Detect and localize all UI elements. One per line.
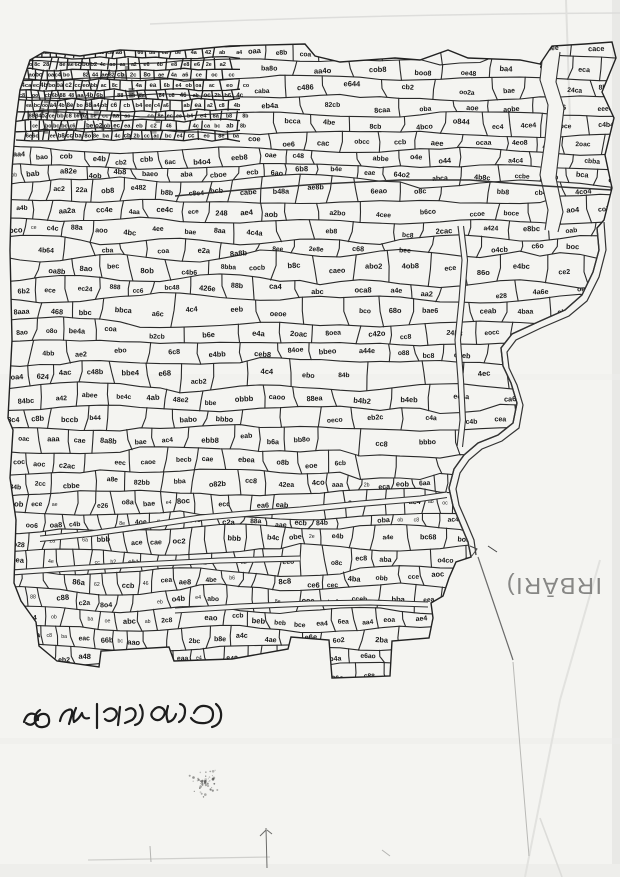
svg-text:ee: ee bbox=[176, 114, 182, 120]
svg-text:eca: eca bbox=[378, 484, 390, 492]
svg-text:cb2: cb2 bbox=[115, 159, 127, 167]
svg-text:248: 248 bbox=[215, 208, 227, 217]
svg-text:8ao: 8ao bbox=[79, 264, 93, 273]
svg-text:be: be bbox=[90, 114, 96, 120]
svg-text:4bb: 4bb bbox=[42, 350, 54, 357]
svg-text:ob: ob bbox=[101, 103, 109, 109]
svg-text:4ba: 4ba bbox=[348, 574, 362, 584]
svg-text:oca8: oca8 bbox=[354, 285, 371, 294]
svg-text:eec: eec bbox=[114, 459, 126, 467]
svg-text:bo: bo bbox=[35, 73, 43, 79]
svg-text:bc: bc bbox=[53, 124, 59, 130]
svg-text:ec8: ec8 bbox=[355, 554, 367, 562]
svg-text:b8: b8 bbox=[58, 133, 66, 139]
svg-text:4b8: 4b8 bbox=[113, 167, 126, 176]
svg-text:bae: bae bbox=[134, 439, 147, 447]
svg-text:b4: b4 bbox=[187, 114, 193, 120]
svg-text:6b: 6b bbox=[164, 83, 170, 89]
svg-text:bba: bba bbox=[174, 478, 187, 486]
svg-text:c2a: c2a bbox=[79, 600, 91, 608]
svg-text:c4: c4 bbox=[55, 73, 62, 79]
svg-text:426e: 426e bbox=[199, 283, 216, 293]
svg-text:46: 46 bbox=[143, 581, 149, 587]
svg-text:2bc: 2bc bbox=[189, 638, 201, 645]
svg-text:2oac: 2oac bbox=[290, 329, 308, 339]
svg-text:ec: ec bbox=[33, 83, 39, 89]
svg-text:8b: 8b bbox=[242, 114, 248, 120]
svg-text:ce: ce bbox=[49, 114, 55, 120]
svg-text:ece: ece bbox=[31, 501, 43, 508]
svg-text:a4c4: a4c4 bbox=[508, 157, 523, 164]
svg-text:cb: cb bbox=[45, 93, 52, 99]
svg-text:eoe: eoe bbox=[305, 461, 318, 471]
svg-text:8oea: 8oea bbox=[325, 329, 341, 337]
svg-text:e26: e26 bbox=[97, 503, 108, 510]
svg-text:8o: 8o bbox=[84, 133, 91, 139]
svg-text:a4: a4 bbox=[236, 50, 242, 56]
svg-text:abee: abee bbox=[82, 392, 98, 400]
svg-text:ec24: ec24 bbox=[77, 285, 93, 293]
svg-text:8c: 8c bbox=[34, 62, 40, 68]
svg-text:8c8: 8c8 bbox=[278, 576, 291, 586]
svg-text:e8: e8 bbox=[171, 62, 177, 68]
svg-text:28: 28 bbox=[43, 62, 49, 68]
svg-text:aa4: aa4 bbox=[13, 150, 25, 158]
svg-text:c48b: c48b bbox=[87, 367, 104, 376]
svg-text:c486: c486 bbox=[297, 82, 314, 92]
svg-text:2e: 2e bbox=[206, 62, 212, 68]
svg-text:c4c: c4c bbox=[47, 225, 59, 233]
svg-text:ea: ea bbox=[26, 103, 32, 109]
svg-text:ae: ae bbox=[68, 62, 74, 68]
svg-text:eao: eao bbox=[204, 613, 218, 623]
svg-text:4ob: 4ob bbox=[89, 171, 103, 180]
svg-text:ece: ece bbox=[188, 208, 200, 216]
svg-text:abca: abca bbox=[432, 175, 448, 183]
svg-text:88a: 88a bbox=[250, 518, 262, 525]
svg-text:e4a: e4a bbox=[252, 329, 266, 339]
svg-text:82cb: 82cb bbox=[325, 102, 341, 109]
svg-text:acb2: acb2 bbox=[191, 379, 207, 386]
svg-text:aa: aa bbox=[120, 62, 126, 68]
svg-text:ce2: ce2 bbox=[558, 269, 570, 277]
svg-text:8e: 8e bbox=[157, 114, 163, 120]
svg-text:eae: eae bbox=[364, 170, 375, 177]
svg-text:b4e: b4e bbox=[330, 166, 342, 173]
svg-text:e4b: e4b bbox=[331, 533, 343, 541]
svg-text:e68: e68 bbox=[158, 368, 171, 378]
svg-text:a4b: a4b bbox=[16, 205, 28, 212]
svg-text:ab: ab bbox=[145, 619, 151, 625]
svg-text:ab: ab bbox=[184, 103, 191, 109]
svg-text:4aa: 4aa bbox=[129, 209, 141, 216]
svg-text:o8a: o8a bbox=[122, 499, 134, 506]
svg-text:b8b: b8b bbox=[160, 188, 174, 197]
svg-text:4bco: 4bco bbox=[416, 122, 434, 131]
svg-text:ec4: ec4 bbox=[492, 124, 504, 131]
svg-text:e4: e4 bbox=[176, 83, 182, 89]
svg-text:2ba: 2ba bbox=[375, 635, 389, 645]
svg-text:88a: 88a bbox=[71, 224, 83, 232]
svg-text:bo: bo bbox=[82, 61, 90, 68]
svg-text:84b: 84b bbox=[316, 520, 328, 528]
svg-text:o844: o844 bbox=[453, 116, 471, 126]
svg-text:abo2: abo2 bbox=[365, 261, 382, 270]
svg-text:cea: cea bbox=[160, 577, 172, 585]
svg-text:ab: ab bbox=[219, 50, 226, 56]
svg-text:bc8: bc8 bbox=[422, 353, 434, 360]
svg-text:bbbo: bbbo bbox=[419, 439, 436, 446]
svg-text:eb: eb bbox=[157, 599, 163, 605]
svg-text:4b: 4b bbox=[86, 92, 93, 99]
svg-text:44: 44 bbox=[92, 73, 99, 79]
svg-text:8e: 8e bbox=[218, 133, 224, 139]
svg-text:ba4: ba4 bbox=[499, 64, 513, 74]
svg-text:bae: bae bbox=[184, 229, 196, 237]
svg-text:a424: a424 bbox=[483, 225, 498, 232]
svg-text:4e: 4e bbox=[48, 559, 54, 565]
svg-text:boc: boc bbox=[566, 242, 579, 251]
svg-text:o8b: o8b bbox=[276, 458, 290, 467]
svg-text:aaa: aaa bbox=[47, 434, 60, 443]
svg-text:c4: c4 bbox=[154, 103, 160, 109]
svg-text:oo2a: oo2a bbox=[459, 89, 475, 97]
svg-text:68o: 68o bbox=[389, 306, 402, 315]
svg-text:4a: 4a bbox=[171, 73, 178, 79]
svg-text:cc8: cc8 bbox=[400, 334, 412, 342]
svg-text:22a: 22a bbox=[76, 186, 88, 194]
svg-text:oac: oac bbox=[18, 435, 30, 443]
svg-text:c8: c8 bbox=[414, 518, 420, 524]
svg-text:oae: oae bbox=[264, 152, 276, 160]
svg-text:4co: 4co bbox=[312, 478, 326, 488]
svg-text:b6a: b6a bbox=[267, 438, 279, 446]
svg-text:oe: oe bbox=[105, 619, 111, 625]
svg-text:6b: 6b bbox=[52, 93, 58, 99]
svg-text:cocb: cocb bbox=[249, 265, 265, 273]
svg-text:ea: ea bbox=[124, 124, 131, 130]
svg-text:a2: a2 bbox=[207, 103, 213, 109]
svg-text:cace: cace bbox=[588, 44, 604, 53]
svg-text:ec: ec bbox=[113, 123, 120, 130]
svg-text:coa: coa bbox=[300, 51, 312, 58]
svg-text:6ao: 6ao bbox=[270, 168, 284, 178]
svg-text:ece: ece bbox=[444, 264, 457, 273]
svg-text:6a: 6a bbox=[82, 537, 88, 543]
svg-text:bbe4: bbe4 bbox=[121, 368, 139, 377]
svg-text:88b: 88b bbox=[231, 282, 244, 291]
svg-text:eo: eo bbox=[203, 133, 210, 139]
svg-text:eab: eab bbox=[240, 433, 253, 441]
svg-text:c68: c68 bbox=[352, 244, 364, 254]
svg-text:6aa: 6aa bbox=[419, 480, 431, 488]
svg-text:babo: babo bbox=[179, 414, 197, 424]
svg-text:ac4: ac4 bbox=[162, 437, 174, 445]
svg-text:bbb: bbb bbox=[227, 533, 242, 543]
svg-text:ee: ee bbox=[145, 103, 152, 109]
svg-text:ba: ba bbox=[102, 133, 109, 139]
svg-text:IRBĀRI): IRBĀRI) bbox=[505, 573, 602, 599]
svg-text:bbbo: bbbo bbox=[215, 414, 234, 424]
svg-text:8caa: 8caa bbox=[374, 105, 392, 115]
svg-text:ba: ba bbox=[75, 132, 83, 139]
svg-text:8o4: 8o4 bbox=[100, 602, 112, 609]
svg-text:468: 468 bbox=[51, 307, 64, 317]
svg-text:bo: bo bbox=[45, 124, 52, 130]
svg-text:bce: bce bbox=[294, 622, 306, 630]
svg-text:o44: o44 bbox=[438, 156, 452, 166]
svg-text:ecb: ecb bbox=[294, 518, 308, 528]
svg-text:c8b: c8b bbox=[31, 414, 45, 424]
svg-text:o4b: o4b bbox=[171, 594, 185, 604]
svg-text:co: co bbox=[243, 83, 250, 89]
svg-text:6ac: 6ac bbox=[164, 159, 176, 167]
svg-text:ea4: ea4 bbox=[316, 620, 328, 627]
svg-text:cb: cb bbox=[117, 72, 124, 79]
svg-text:48e2: 48e2 bbox=[173, 397, 189, 405]
svg-text:a4: a4 bbox=[93, 103, 100, 109]
svg-text:cce: cce bbox=[408, 574, 419, 581]
svg-text:cc: cc bbox=[228, 73, 234, 79]
svg-text:obbb: obbb bbox=[234, 394, 253, 404]
svg-text:bab: bab bbox=[26, 169, 40, 179]
svg-text:42ea: 42ea bbox=[279, 482, 295, 489]
svg-text:o8o: o8o bbox=[46, 328, 58, 335]
svg-text:o82b: o82b bbox=[209, 479, 227, 489]
svg-text:cea: cea bbox=[494, 415, 506, 423]
svg-text:88ea: 88ea bbox=[306, 393, 323, 403]
svg-text:aoe: aoe bbox=[466, 104, 479, 113]
svg-text:a2bo: a2bo bbox=[329, 210, 345, 218]
svg-text:e4: e4 bbox=[177, 133, 183, 139]
svg-text:coe: coe bbox=[248, 134, 260, 143]
svg-text:oa: oa bbox=[195, 83, 201, 89]
svg-text:8a8b: 8a8b bbox=[230, 248, 248, 258]
svg-text:2b: 2b bbox=[364, 483, 370, 489]
svg-text:ao4: ao4 bbox=[566, 205, 580, 215]
svg-text:aa2a: aa2a bbox=[58, 206, 76, 216]
svg-text:e4bb: e4bb bbox=[208, 349, 226, 359]
svg-text:8o: 8o bbox=[143, 72, 150, 79]
svg-text:ab: ab bbox=[193, 93, 200, 99]
svg-text:4be: 4be bbox=[323, 118, 336, 127]
svg-text:eb8: eb8 bbox=[325, 228, 337, 235]
svg-text:cae: cae bbox=[73, 436, 85, 445]
svg-text:ob: ob bbox=[104, 124, 111, 130]
svg-text:4ce4: 4ce4 bbox=[521, 122, 537, 130]
svg-text:84bc: 84bc bbox=[18, 396, 35, 406]
svg-text:ocaa: ocaa bbox=[476, 140, 492, 147]
svg-text:oa8: oa8 bbox=[49, 520, 62, 530]
svg-text:bc68: bc68 bbox=[420, 532, 436, 541]
svg-text:4a: 4a bbox=[136, 83, 143, 89]
svg-text:c48: c48 bbox=[292, 153, 304, 160]
svg-text:8oc: 8oc bbox=[177, 496, 191, 506]
svg-text:ea: ea bbox=[195, 102, 202, 109]
svg-text:abbe: abbe bbox=[372, 155, 389, 163]
svg-text:eo: eo bbox=[226, 83, 233, 89]
svg-text:ac: ac bbox=[124, 114, 130, 120]
svg-text:c8: c8 bbox=[219, 103, 225, 109]
svg-text:ccbe: ccbe bbox=[515, 173, 530, 181]
svg-text:6c8: 6c8 bbox=[168, 348, 180, 357]
svg-text:cob8: cob8 bbox=[369, 65, 387, 75]
svg-text:e4: e4 bbox=[200, 114, 207, 120]
svg-text:oa4: oa4 bbox=[10, 372, 24, 382]
svg-text:bcb: bcb bbox=[210, 186, 224, 196]
svg-text:aao: aao bbox=[127, 637, 141, 647]
svg-text:4ab: 4ab bbox=[146, 393, 160, 403]
svg-text:a8e: a8e bbox=[106, 476, 118, 484]
svg-text:cc: cc bbox=[102, 114, 108, 120]
svg-text:2e8e: 2e8e bbox=[309, 246, 324, 254]
svg-text:4a6e: 4a6e bbox=[533, 288, 549, 296]
svg-text:b4: b4 bbox=[135, 103, 143, 109]
svg-text:ace: ace bbox=[131, 539, 143, 547]
svg-text:ce: ce bbox=[196, 73, 202, 79]
svg-text:ba: ba bbox=[88, 616, 94, 622]
svg-text:cc4e: cc4e bbox=[96, 205, 113, 214]
svg-text:ece: ece bbox=[44, 287, 56, 295]
svg-text:cc8: cc8 bbox=[375, 439, 388, 449]
svg-text:ac2: ac2 bbox=[53, 186, 65, 193]
svg-text:eeb8: eeb8 bbox=[231, 152, 248, 162]
svg-text:abc: abc bbox=[123, 616, 136, 625]
svg-text:ccb: ccb bbox=[232, 612, 244, 619]
svg-text:abc: abc bbox=[311, 287, 323, 296]
svg-text:6cb: 6cb bbox=[334, 460, 346, 468]
svg-text:6b: 6b bbox=[157, 62, 163, 68]
svg-text:bb: bb bbox=[57, 114, 64, 120]
svg-text:e2a: e2a bbox=[197, 246, 211, 256]
svg-text:oe48: oe48 bbox=[460, 70, 476, 78]
svg-text:bco: bco bbox=[359, 308, 371, 316]
svg-text:ob8: ob8 bbox=[101, 186, 114, 195]
svg-text:eoa: eoa bbox=[383, 617, 395, 624]
svg-text:c2: c2 bbox=[65, 82, 72, 89]
svg-text:bo: bo bbox=[48, 83, 56, 89]
svg-text:2c8: 2c8 bbox=[161, 617, 173, 625]
svg-text:aaa: aaa bbox=[332, 482, 344, 489]
svg-text:8e: 8e bbox=[59, 62, 65, 68]
svg-text:aoo: aoo bbox=[95, 226, 109, 235]
svg-text:e8bc: e8bc bbox=[523, 224, 540, 233]
svg-text:oeoe: oeoe bbox=[270, 309, 287, 318]
svg-text:ce: ce bbox=[31, 225, 37, 231]
svg-text:b2: b2 bbox=[41, 113, 49, 120]
svg-text:bccb: bccb bbox=[61, 415, 79, 424]
svg-text:8b: 8b bbox=[240, 124, 246, 130]
svg-text:aee: aee bbox=[431, 138, 444, 148]
svg-text:ce6: ce6 bbox=[307, 580, 320, 589]
svg-text:be: be bbox=[86, 124, 94, 130]
svg-text:4b: 4b bbox=[58, 103, 65, 109]
svg-text:4c4: 4c4 bbox=[260, 367, 274, 376]
svg-text:4c: 4c bbox=[100, 62, 106, 68]
svg-text:b8: b8 bbox=[226, 114, 232, 120]
svg-text:4ee: 4ee bbox=[152, 226, 164, 233]
svg-text:aoc: aoc bbox=[33, 461, 45, 468]
svg-text:a48: a48 bbox=[78, 652, 91, 661]
svg-text:oba: oba bbox=[377, 516, 390, 525]
svg-text:bee: bee bbox=[399, 247, 411, 255]
svg-text:ca: ca bbox=[204, 124, 211, 130]
svg-text:e6ao: e6ao bbox=[360, 653, 375, 660]
svg-text:e6: e6 bbox=[143, 62, 149, 68]
svg-text:oba: oba bbox=[419, 106, 432, 114]
svg-text:86o: 86o bbox=[477, 268, 490, 277]
svg-text:c8: c8 bbox=[47, 633, 53, 639]
svg-text:aoc: aoc bbox=[431, 569, 444, 579]
svg-text:2c: 2c bbox=[130, 73, 137, 79]
svg-text:bae: bae bbox=[143, 500, 156, 508]
svg-text:4c: 4c bbox=[236, 92, 243, 99]
svg-text:a4c: a4c bbox=[236, 632, 248, 640]
svg-text:bc: bc bbox=[61, 124, 68, 130]
svg-text:ba: ba bbox=[233, 133, 240, 139]
svg-text:co: co bbox=[147, 114, 154, 120]
svg-text:2b: 2b bbox=[214, 93, 221, 99]
svg-text:ob: ob bbox=[397, 518, 403, 524]
svg-text:4c4a: 4c4a bbox=[246, 227, 264, 237]
svg-text:2cac: 2cac bbox=[435, 226, 452, 236]
svg-text:be4c: be4c bbox=[116, 394, 131, 401]
svg-text:b6: b6 bbox=[74, 114, 80, 120]
svg-text:6ea: 6ea bbox=[338, 619, 349, 626]
svg-text:cc: cc bbox=[75, 83, 81, 89]
svg-text:ba: ba bbox=[56, 82, 64, 89]
svg-text:bca: bca bbox=[576, 170, 590, 180]
svg-text:coa: coa bbox=[104, 325, 117, 334]
svg-text:ceab: ceab bbox=[480, 306, 497, 315]
svg-text:2e: 2e bbox=[309, 534, 315, 540]
svg-text:ab: ab bbox=[226, 123, 233, 130]
svg-text:bao: bao bbox=[36, 154, 49, 162]
svg-text:oe6: oe6 bbox=[282, 139, 295, 148]
svg-text:8bba: 8bba bbox=[221, 264, 237, 272]
svg-text:e8b: e8b bbox=[276, 49, 288, 56]
svg-text:ae: ae bbox=[101, 73, 108, 79]
svg-text:baeo: baeo bbox=[142, 171, 158, 178]
svg-text:ae8: ae8 bbox=[179, 577, 191, 586]
svg-text:obb: obb bbox=[375, 575, 388, 583]
svg-text:ebea: ebea bbox=[238, 455, 256, 465]
svg-text:ebb8: ebb8 bbox=[201, 435, 219, 444]
svg-text:2cc: 2cc bbox=[35, 481, 47, 488]
svg-text:62: 62 bbox=[81, 114, 88, 120]
svg-text:e4: e4 bbox=[166, 500, 172, 506]
svg-text:ae: ae bbox=[52, 502, 58, 508]
svg-text:ac: ac bbox=[101, 83, 107, 89]
svg-text:6e: 6e bbox=[26, 133, 32, 139]
svg-text:42: 42 bbox=[205, 50, 211, 56]
svg-text:eb: eb bbox=[136, 124, 143, 130]
svg-text:ac: ac bbox=[154, 133, 160, 139]
svg-text:ccb: ccb bbox=[122, 581, 135, 590]
svg-text:8e: 8e bbox=[93, 133, 99, 139]
svg-text:o8: o8 bbox=[169, 93, 175, 99]
svg-text:66b: 66b bbox=[101, 635, 115, 644]
svg-text:cbbe: cbbe bbox=[63, 481, 80, 491]
svg-text:c4a: c4a bbox=[425, 415, 437, 422]
svg-text:coc: coc bbox=[13, 459, 25, 467]
svg-text:b44: b44 bbox=[89, 415, 101, 422]
svg-text:b6e: b6e bbox=[202, 330, 215, 340]
svg-text:8e: 8e bbox=[67, 102, 74, 109]
svg-text:b4o4: b4o4 bbox=[193, 157, 212, 167]
svg-text:6b: 6b bbox=[96, 93, 103, 99]
svg-text:oo: oo bbox=[32, 93, 38, 99]
